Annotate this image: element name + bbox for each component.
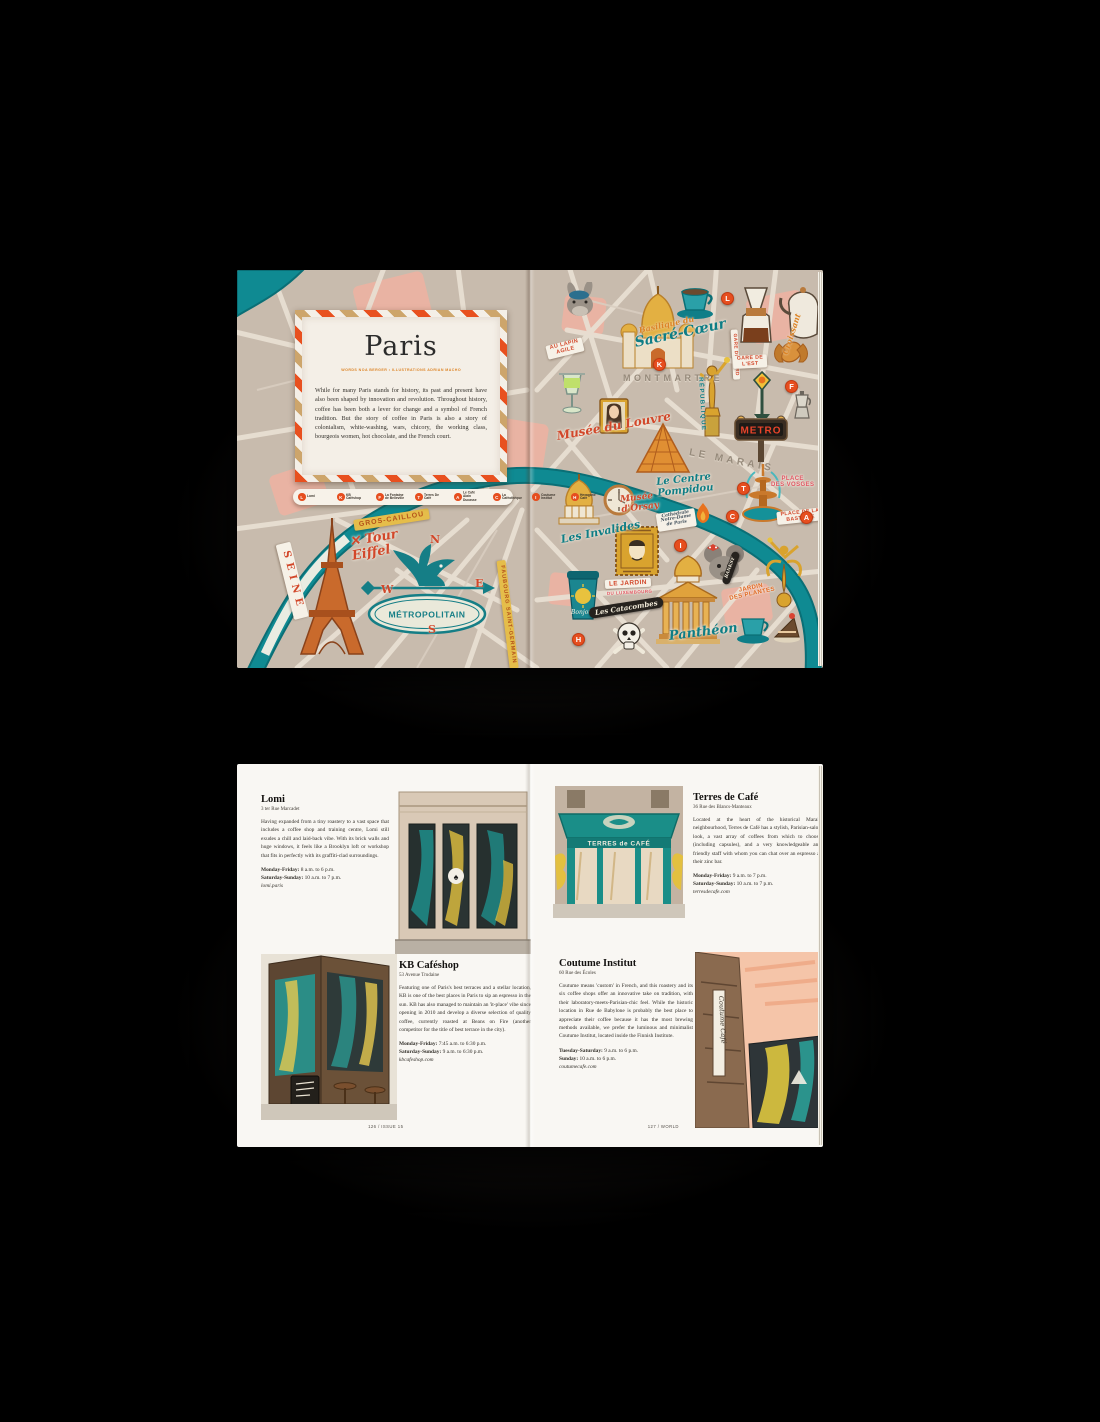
legend-marker-a: A [454, 493, 462, 501]
shop-address: 60 Rue des Écoles [559, 971, 693, 976]
legend-marker-k: K [337, 493, 345, 501]
legend-label: La Caféothèque [502, 494, 522, 501]
catacombes-skull-illustration [607, 618, 651, 662]
hours-value: 10 a.m. to 7 p.m. [305, 875, 342, 881]
page-title: Paris [364, 331, 437, 362]
legend-item-t: TTerres De Café [415, 492, 454, 503]
donkey-illustration [559, 282, 601, 318]
coutume-storefront-illustration: Coutume Café [695, 952, 821, 1128]
legend-label: Hexagone Café [580, 494, 600, 501]
hours-label: Sunday: [559, 1056, 578, 1062]
terres-awning-text: TERRES de CAFÉ [588, 839, 651, 848]
lomi-spade-logo: ♠ [454, 872, 459, 882]
shop-description: Coutume means 'custom' in French, and th… [559, 982, 693, 1041]
listing-coutume-institut: Coutume Institut 60 Rue des Écoles Coutu… [559, 958, 693, 1070]
shop-hours: Monday-Friday: 9 a.m. to 7 p.m. Saturday… [693, 872, 821, 888]
legend-label: Coutume Institut [541, 494, 561, 501]
legend-label: Terres De Café [424, 494, 444, 501]
hours-label: Tuesday-Saturday: [559, 1048, 603, 1054]
intro-paragraph: While for many Paris stands for history,… [315, 386, 487, 442]
map-legend-items: LLomiKKB CaféshopFLa Fontaine de Bellevi… [298, 489, 508, 505]
absinthe-glass-illustration [555, 370, 589, 416]
gare-de-lest-label: GARE DEL'EST [733, 354, 768, 369]
paris-map-spread: MÉTROPOLITAIN [237, 270, 823, 668]
map-legend: LLomiKKB CaféshopFLa Fontaine de Bellevi… [293, 489, 513, 505]
map-marker-t: T [737, 482, 750, 495]
shop-address: 3 ter Rue Marcadet [261, 807, 389, 812]
shop-url: lomi.paris [261, 883, 389, 889]
montmartre-label: MONTMARTRE [623, 374, 723, 384]
genie-bastille-statue-illustration [761, 522, 807, 610]
metro-text: METRO [740, 426, 781, 437]
map-marker-c: C [726, 510, 739, 523]
cup-and-cake-illustration [735, 606, 801, 646]
hours-value: 9 a.m. to 6:30 p.m. [443, 1049, 484, 1055]
legend-item-h: HHexagone Café [571, 492, 610, 503]
hours-value: 7:45 a.m. to 6:30 p.m. [439, 1041, 487, 1047]
map-marker-f: F [785, 380, 798, 393]
byline: WORDS NOA BERGER • ILLUSTRATIONS ADRIAN … [341, 368, 461, 372]
page-edge-stack [818, 272, 823, 666]
shop-address: 53 Avenue Trudaine [399, 973, 531, 978]
legend-item-f: FLa Fontaine de Belleville [376, 492, 415, 503]
page-number-right: 127 / WORLD [648, 1124, 679, 1129]
compass-w: W [381, 584, 393, 596]
hours-value: 10 a.m. to 7 p.m. [737, 881, 774, 887]
shop-description: Located at the heart of the historical M… [693, 816, 821, 866]
title-card-inner: Paris WORDS NOA BERGER • ILLUSTRATIONS A… [302, 317, 500, 475]
map-marker-i: I [674, 539, 687, 552]
legend-item-c: CLa Caféothèque [493, 492, 532, 503]
lomi-storefront-illustration: ♠ [395, 790, 531, 954]
hours-label: Monday-Friday: [399, 1041, 437, 1047]
shop-url: kbcafeshop.com [399, 1057, 531, 1063]
legend-label: Le Café Alain Ducasse [463, 492, 483, 502]
legend-label: La Fontaine de Belleville [385, 494, 405, 501]
shop-address: 36 Rue des Blancs-Manteaux [693, 805, 821, 810]
shop-url: coutumecafe.com [559, 1064, 693, 1070]
shop-name: Terres de Café [693, 792, 821, 803]
shop-hours: Monday-Friday: 8 a.m. to 6 p.m. Saturday… [261, 866, 389, 882]
place-des-vosges-label: PLACEDES VOSGES [771, 476, 814, 489]
hours-label: Saturday-Sunday: [261, 875, 303, 881]
shop-description: Featuring one of Paris's best terraces a… [399, 984, 531, 1034]
legend-item-i: ICoutume Institut [532, 492, 571, 503]
map-marker-h: H [572, 633, 585, 646]
hours-value: 9 a.m. to 7 p.m. [733, 873, 767, 879]
shop-name: KB Caféshop [399, 960, 531, 971]
hours-value: 9 a.m. to 6 p.m. [604, 1048, 638, 1054]
shop-url: terresdecafe.com [693, 889, 821, 895]
hours-label: Saturday-Sunday: [399, 1049, 441, 1055]
legend-marker-h: H [571, 493, 579, 501]
page-edge-stack [818, 766, 823, 1145]
legend-item-k: KKB Caféshop [337, 492, 376, 503]
flame-illustration [695, 502, 711, 524]
legend-marker-i: I [532, 493, 540, 501]
map-marker-a: A [800, 511, 813, 524]
terres-de-cafe-storefront-illustration: TERRES de CAFÉ [553, 786, 685, 918]
paris-title-card: Paris WORDS NOA BERGER • ILLUSTRATIONS A… [295, 310, 507, 482]
legend-marker-l: L [298, 493, 306, 501]
shop-name: Lomi [261, 794, 389, 805]
hours-value: 10 a.m. to 6 p.m. [580, 1056, 617, 1062]
map-marker-l: L [721, 292, 734, 305]
kb-cafeshop-storefront-illustration [261, 954, 397, 1120]
compass-e: E [475, 578, 483, 590]
legend-item-l: LLomi [298, 493, 337, 501]
legend-marker-t: T [415, 493, 423, 501]
legend-marker-f: F [376, 493, 384, 501]
hours-label: Monday-Friday: [261, 867, 299, 873]
moka-pot-illustration [793, 390, 811, 420]
shop-hours: Monday-Friday: 7:45 a.m. to 6:30 p.m. Sa… [399, 1040, 531, 1056]
hours-label: Saturday-Sunday: [693, 881, 735, 887]
map-marker-k: K [653, 358, 666, 371]
listing-lomi: Lomi 3 ter Rue Marcadet Having expanded … [261, 794, 389, 889]
listing-kb-cafeshop: KB Caféshop 53 Avenue Trudaine Featuring… [399, 960, 531, 1063]
legend-marker-c: C [493, 493, 501, 501]
compass-s: S [428, 624, 436, 636]
legend-label: Lomi [307, 495, 327, 498]
coffee-guide-spread: Lomi 3 ter Rue Marcadet Having expanded … [237, 764, 823, 1147]
legend-item-a: ALe Café Alain Ducasse [454, 489, 493, 505]
metropolitain-text: MÉTROPOLITAIN [389, 610, 466, 620]
shop-name: Coutume Institut [559, 958, 693, 969]
hours-value: 8 a.m. to 6 p.m. [301, 867, 335, 873]
legend-label: KB Caféshop [346, 494, 366, 501]
page-number-left: 126 / ISSUE 15 [368, 1124, 403, 1129]
shop-description: Having expanded from a tiny roastery to … [261, 818, 389, 860]
hours-label: Monday-Friday: [693, 873, 731, 879]
compass-n: N [430, 534, 440, 546]
canvas: MÉTROPOLITAIN [0, 0, 1100, 1422]
shop-hours: Tuesday-Saturday: 9 a.m. to 6 p.m. Sunda… [559, 1047, 693, 1063]
listing-terres-de-cafe: Terres de Café 36 Rue des Blancs-Manteau… [693, 792, 821, 895]
